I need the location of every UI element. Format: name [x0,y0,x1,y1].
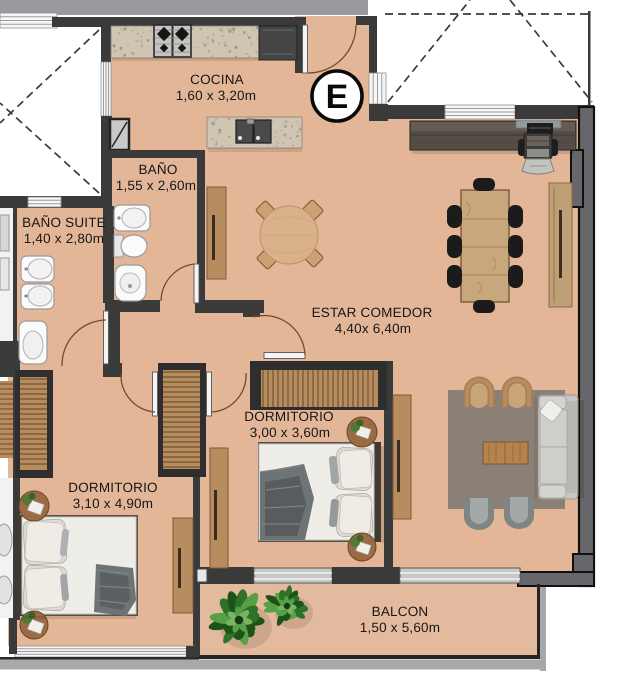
svg-text:4,40x 6,40m: 4,40x 6,40m [335,321,412,336]
svg-text:3,00 x 3,60m: 3,00 x 3,60m [250,425,330,440]
svg-text:1,40 x 2,80m: 1,40 x 2,80m [24,231,104,246]
svg-text:1,50 x 5,60m: 1,50 x 5,60m [360,620,440,635]
svg-text:COCINA: COCINA [190,72,244,87]
svg-text:3,10 x 4,90m: 3,10 x 4,90m [73,496,153,511]
svg-text:BAÑO SUITE: BAÑO SUITE [22,215,106,230]
svg-text:E: E [326,78,349,116]
svg-text:BALCON: BALCON [372,604,429,619]
svg-text:ESTAR COMEDOR: ESTAR COMEDOR [312,305,433,320]
svg-text:BAÑO: BAÑO [138,162,177,177]
svg-text:DORMITORIO: DORMITORIO [68,480,158,495]
svg-text:1,55 x 2,60m: 1,55 x 2,60m [116,178,196,193]
svg-text:DORMITORIO: DORMITORIO [244,409,334,424]
svg-text:1,60 x 3,20m: 1,60 x 3,20m [176,88,256,103]
